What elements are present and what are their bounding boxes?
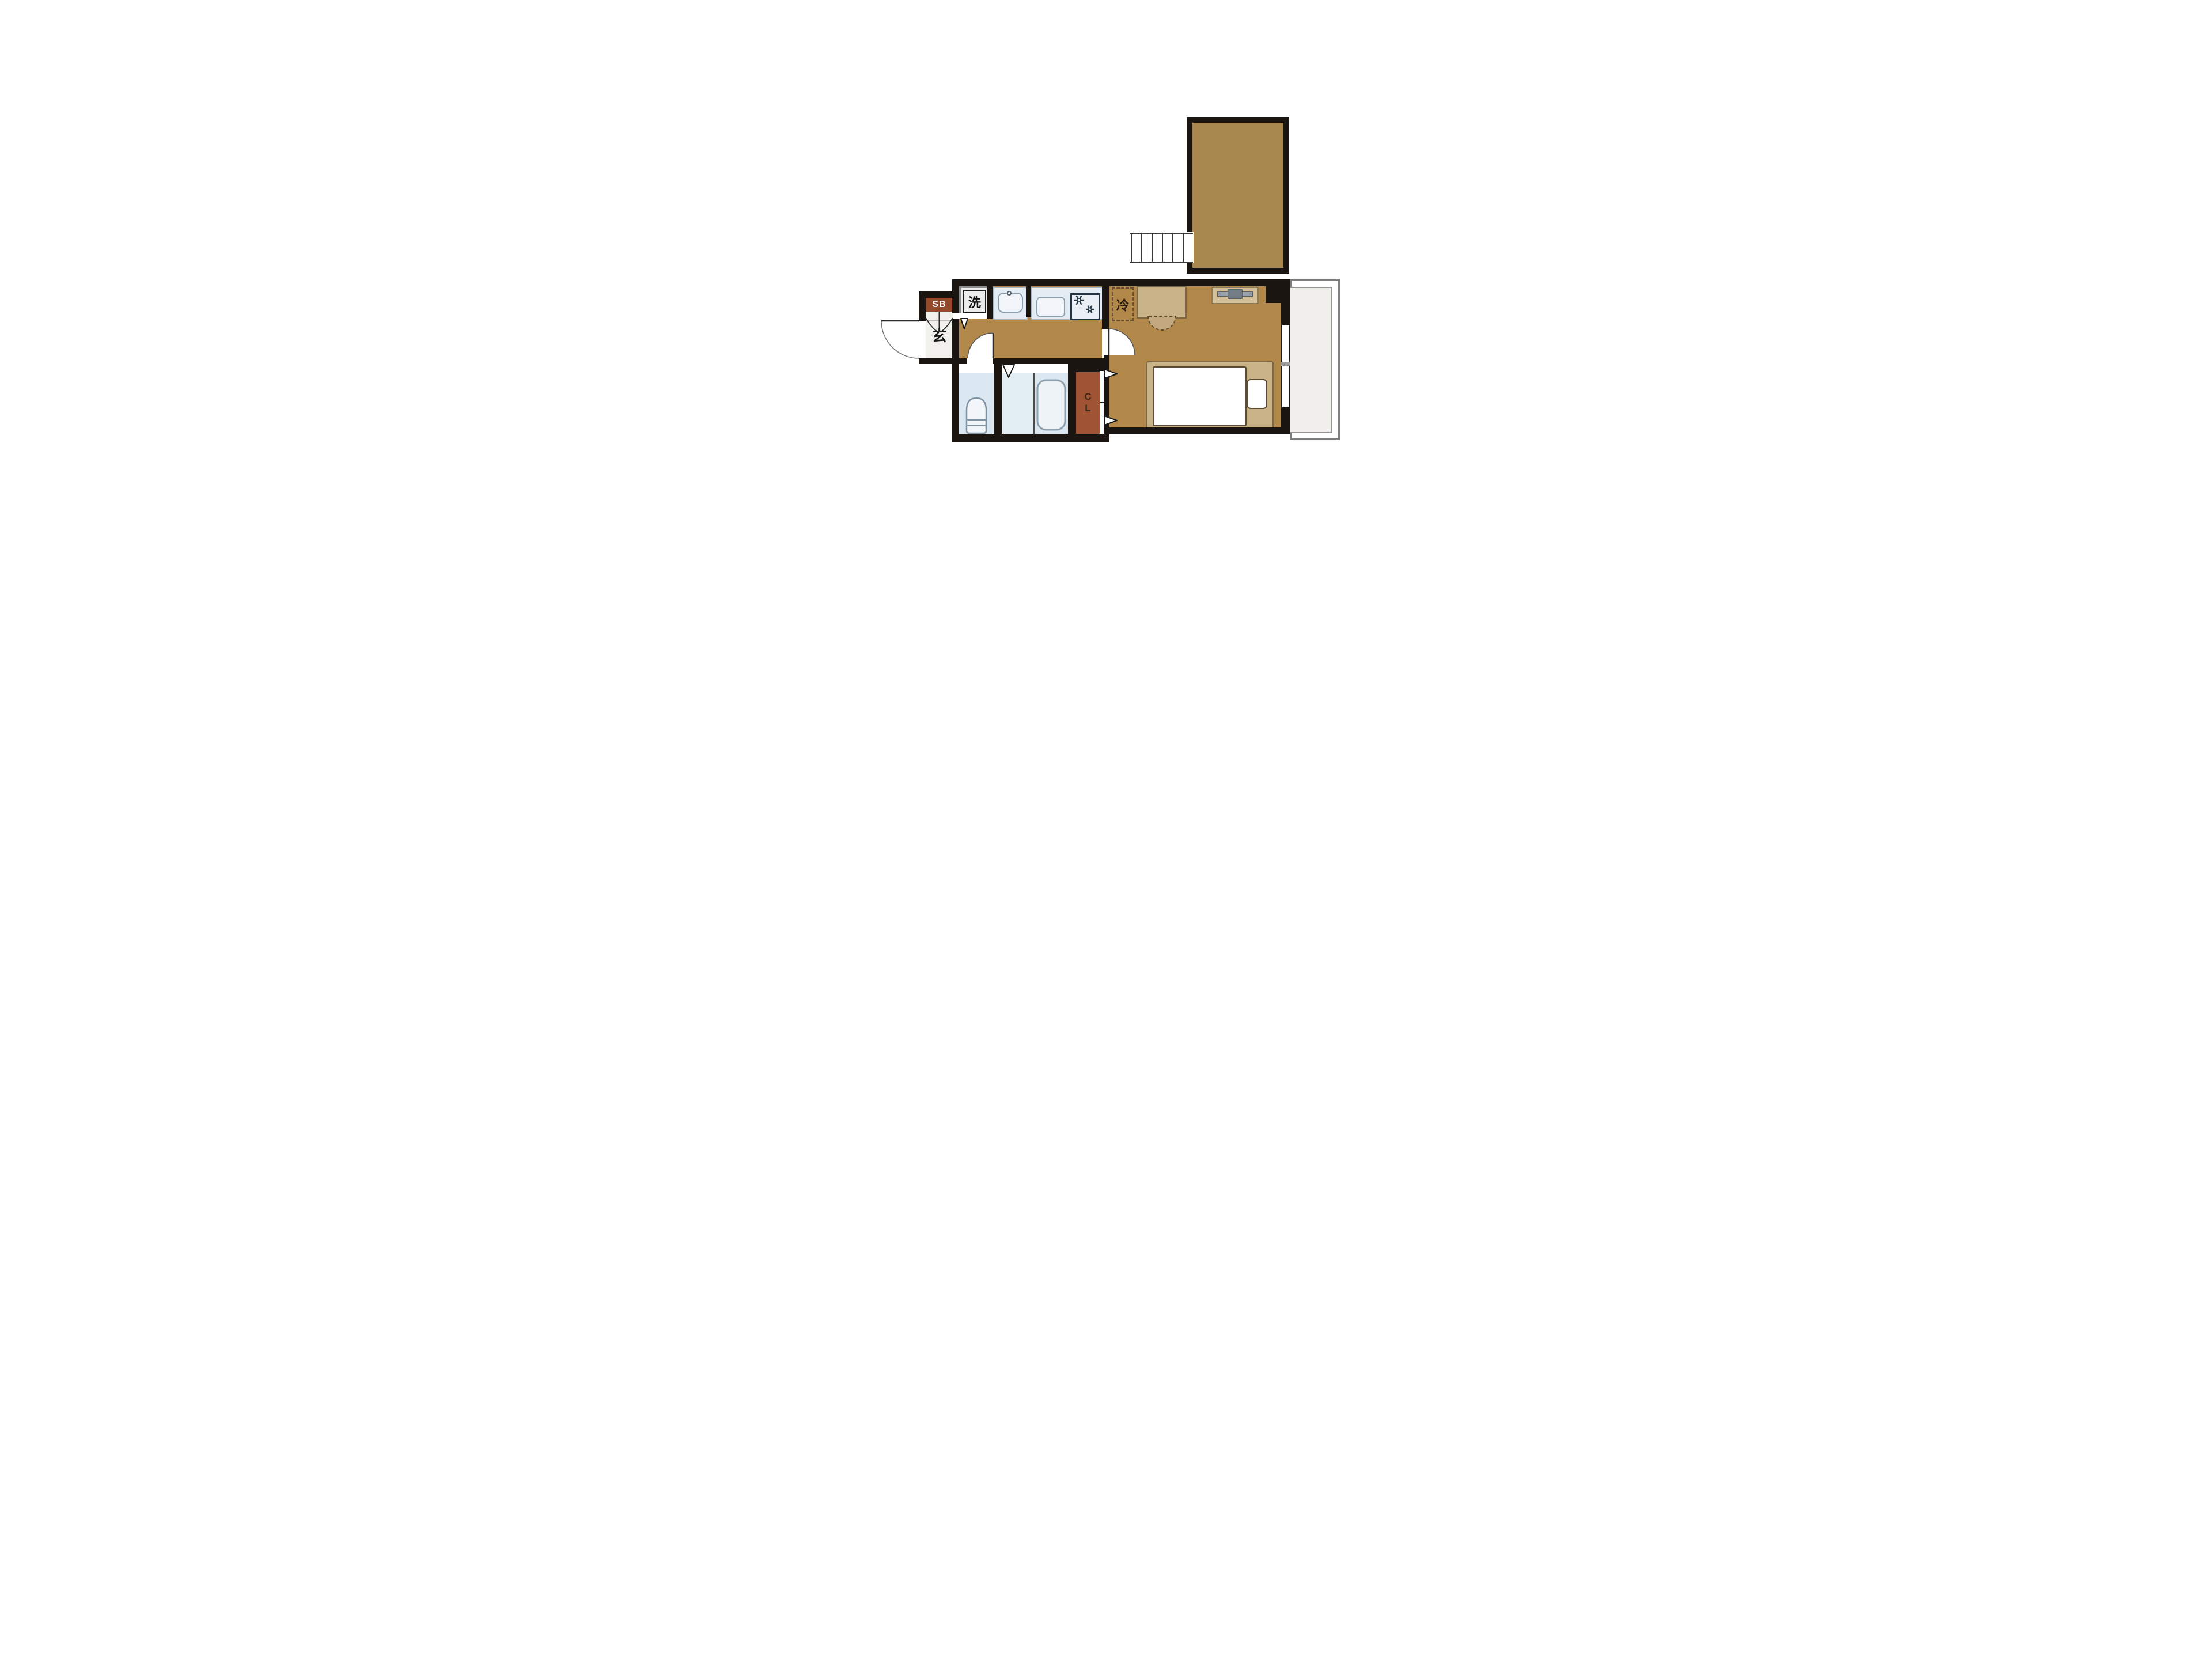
loft-wall-opening (1185, 232, 1194, 263)
main-room-door-opening (1102, 329, 1109, 355)
closet: C L (1076, 371, 1100, 434)
refrigerator-label: 冷 (1113, 289, 1132, 320)
shoe-box-label: SB (926, 298, 953, 312)
washroom-door-strip (1002, 364, 1033, 373)
bed-pillow (1247, 379, 1267, 409)
front-door-swing-icon (881, 321, 919, 358)
main-room-bottom-wall (1100, 427, 1290, 434)
washer-door-strip (953, 313, 987, 319)
lower-left-wall (952, 364, 959, 442)
vanity-counter (993, 287, 1028, 320)
washing-machine-label: 洗 (964, 291, 985, 312)
corner-pillar (1266, 279, 1290, 303)
tv-screen-icon (1228, 289, 1243, 299)
balcony-floor (1290, 287, 1332, 433)
hall-bottom-wall-left (953, 358, 967, 364)
balcony-window (1281, 325, 1290, 407)
refrigerator-space: 冷 (1112, 287, 1134, 321)
washing-machine: 洗 (960, 286, 990, 317)
lower-bottom-wall (952, 434, 1109, 442)
floor-plan-canvas: 玄 SB C L 洗 (737, 0, 1475, 553)
bed-mattress (1153, 366, 1247, 426)
toilet-door-strip (959, 364, 994, 373)
top-wall (952, 279, 1289, 286)
washroom-floor (1002, 373, 1033, 434)
toilet-washroom-wall (994, 364, 1002, 435)
genkan-right-wall (952, 319, 959, 358)
right-wall-upper (1281, 303, 1290, 325)
closet-label-l: L (1085, 403, 1090, 414)
entrance-bottom-wall (919, 358, 953, 364)
genkan-floor: 玄 (926, 312, 953, 358)
loft-ladder-icon (1130, 233, 1193, 262)
vanity-basin (998, 293, 1023, 313)
window-meeting-rail (1281, 362, 1290, 366)
bathroom-floor (1035, 373, 1068, 434)
hall-bottom-wall-right (993, 358, 1109, 364)
washing-machine-inner-frame: 洗 (963, 290, 986, 313)
toilet-floor (959, 373, 994, 434)
entrance-left-wall (919, 291, 926, 321)
hall-room-wall (1102, 286, 1109, 329)
vanity-tap-icon (1007, 291, 1012, 296)
kitchen-sink (1036, 297, 1065, 317)
closet-label-c: C (1084, 391, 1091, 403)
washer-right-wall (987, 280, 993, 319)
vanity-kitchen-wall (1026, 286, 1031, 317)
washer-left-wall (952, 280, 959, 313)
closet-right-wall (1104, 355, 1109, 434)
washroom-bath-partition (1033, 373, 1035, 434)
genkan-label: 玄 (926, 312, 953, 358)
desk (1137, 286, 1187, 319)
stove (1070, 293, 1100, 320)
kitchen-counter (1031, 287, 1104, 320)
closet-door-strip (1100, 371, 1104, 434)
shoe-box: SB (926, 298, 953, 312)
tv-board (1211, 287, 1259, 304)
loft-room (1187, 117, 1289, 274)
bath-closet-wall (1068, 364, 1076, 435)
bath-door-strip (1035, 364, 1068, 373)
